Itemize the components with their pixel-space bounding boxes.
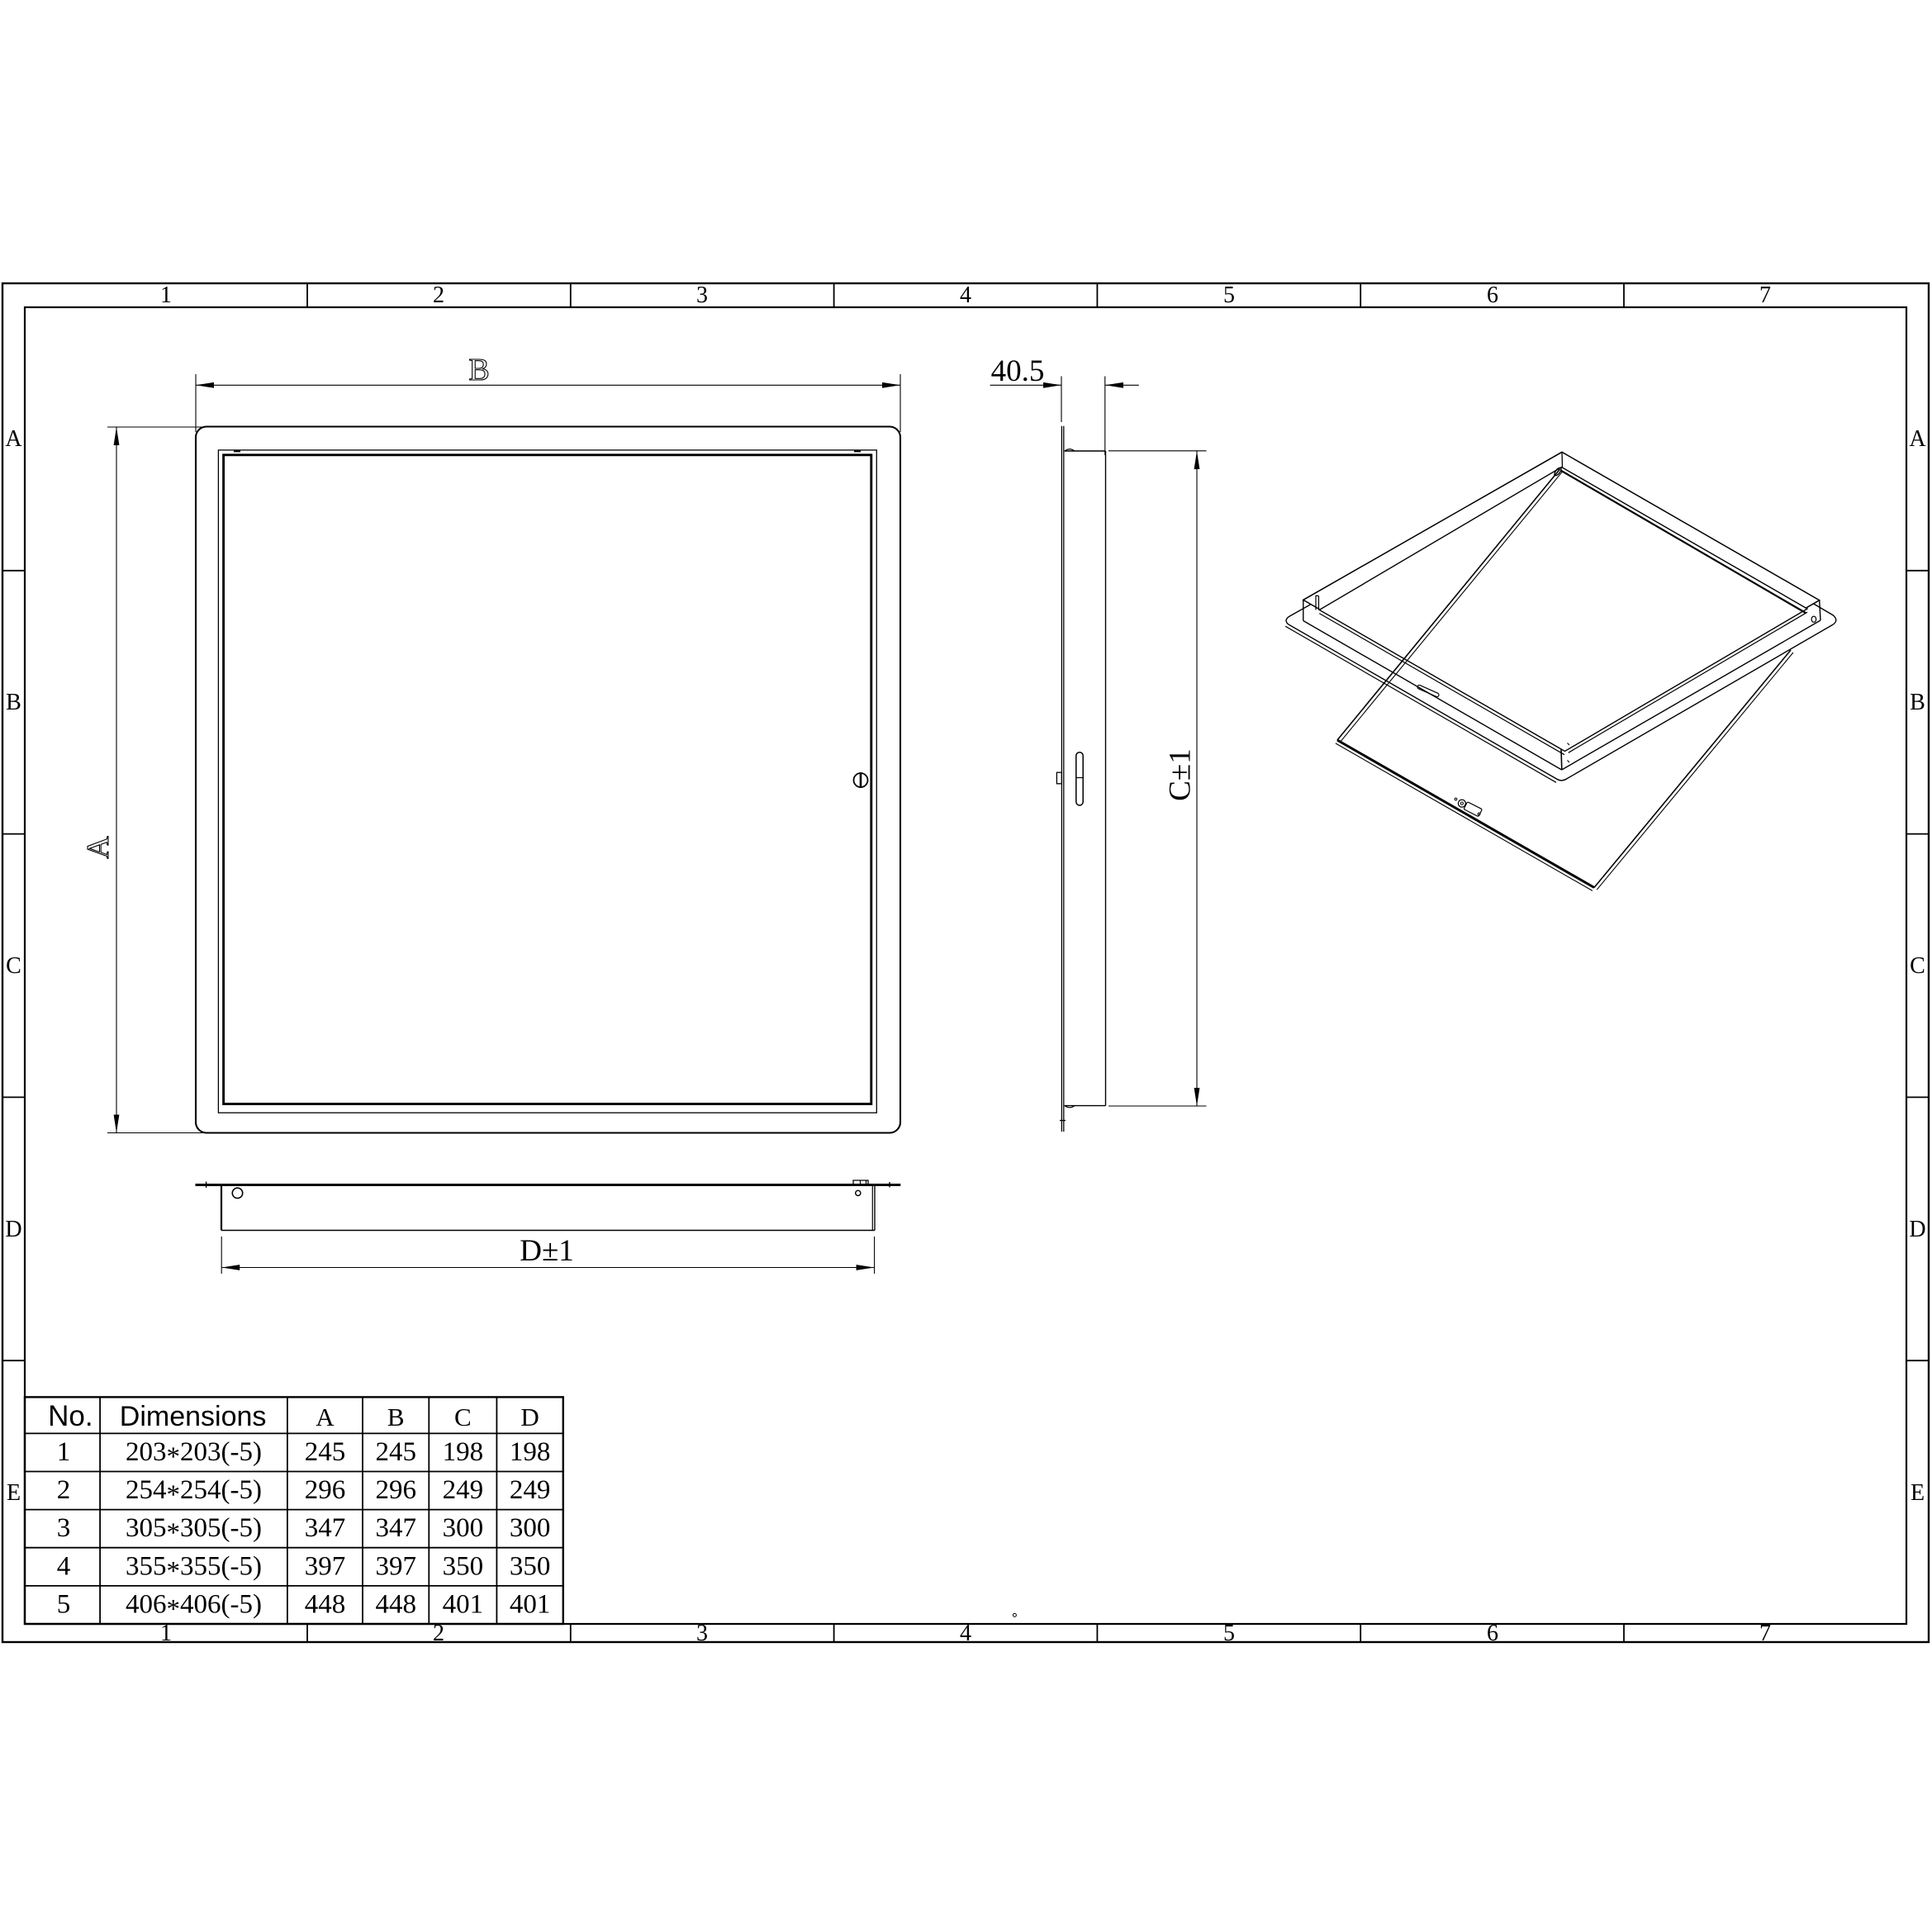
svg-text:Dimensions: Dimensions — [120, 1401, 267, 1432]
svg-text:6: 6 — [1487, 1621, 1498, 1646]
svg-text:350: 350 — [510, 1551, 551, 1581]
svg-text:198: 198 — [510, 1437, 551, 1467]
svg-text:4: 4 — [960, 1621, 971, 1646]
svg-text:4: 4 — [960, 282, 971, 308]
svg-text:300: 300 — [510, 1513, 551, 1543]
svg-text:4: 4 — [57, 1551, 71, 1581]
svg-text:245: 245 — [305, 1437, 346, 1467]
svg-text:7: 7 — [1759, 282, 1771, 308]
svg-text:C: C — [1910, 953, 1925, 979]
svg-text:B: B — [468, 353, 489, 387]
svg-text:401: 401 — [510, 1590, 551, 1620]
svg-text:305*305(-5): 305*305(-5) — [126, 1513, 262, 1548]
svg-text:2: 2 — [433, 282, 444, 308]
svg-text:350: 350 — [443, 1551, 484, 1581]
svg-text:A: A — [1909, 426, 1926, 452]
svg-text:406*406(-5): 406*406(-5) — [126, 1590, 262, 1625]
svg-text:5: 5 — [1223, 1621, 1235, 1646]
svg-text:D: D — [5, 1217, 21, 1242]
svg-text:3: 3 — [57, 1513, 71, 1543]
svg-text:B: B — [6, 690, 21, 715]
svg-text:296: 296 — [305, 1475, 346, 1505]
svg-text:355*355(-5): 355*355(-5) — [126, 1551, 262, 1586]
svg-text:B: B — [387, 1403, 405, 1431]
svg-text:401: 401 — [443, 1590, 484, 1620]
svg-text:D: D — [520, 1403, 539, 1431]
svg-text:347: 347 — [305, 1513, 346, 1543]
svg-text:2: 2 — [57, 1475, 71, 1505]
svg-text:B: B — [1910, 690, 1925, 715]
svg-text:40.5: 40.5 — [991, 354, 1045, 388]
svg-text:E: E — [1911, 1480, 1925, 1506]
svg-text:397: 397 — [305, 1551, 346, 1581]
svg-text:C: C — [454, 1403, 472, 1431]
svg-text:397: 397 — [375, 1551, 416, 1581]
svg-text:5: 5 — [1223, 282, 1235, 308]
svg-text:245: 245 — [375, 1437, 416, 1467]
svg-text:249: 249 — [443, 1475, 484, 1505]
svg-text:D: D — [1909, 1217, 1925, 1242]
svg-text:249: 249 — [510, 1475, 551, 1505]
svg-text:1: 1 — [57, 1437, 71, 1467]
svg-text:6: 6 — [1487, 282, 1498, 308]
svg-text:C±1: C±1 — [1164, 748, 1198, 801]
svg-text:300: 300 — [443, 1513, 484, 1543]
svg-text:E: E — [7, 1480, 21, 1506]
svg-text:448: 448 — [375, 1590, 416, 1620]
svg-text:A: A — [5, 426, 22, 452]
svg-text:198: 198 — [443, 1437, 484, 1467]
svg-text:A: A — [316, 1403, 335, 1431]
svg-text:A: A — [81, 836, 116, 859]
svg-text:3: 3 — [696, 1621, 708, 1646]
svg-text:3: 3 — [696, 282, 708, 308]
svg-text:296: 296 — [375, 1475, 416, 1505]
svg-text:C: C — [6, 953, 21, 979]
svg-text:203*203(-5): 203*203(-5) — [126, 1437, 262, 1472]
svg-text:1: 1 — [160, 282, 172, 308]
svg-text:448: 448 — [305, 1590, 346, 1620]
svg-text:No.: No. — [48, 1400, 93, 1432]
svg-text:5: 5 — [57, 1590, 71, 1620]
svg-text:347: 347 — [375, 1513, 416, 1543]
svg-text:254*254(-5): 254*254(-5) — [126, 1475, 262, 1510]
svg-text:D±1: D±1 — [520, 1234, 574, 1268]
svg-text:7: 7 — [1759, 1621, 1771, 1646]
